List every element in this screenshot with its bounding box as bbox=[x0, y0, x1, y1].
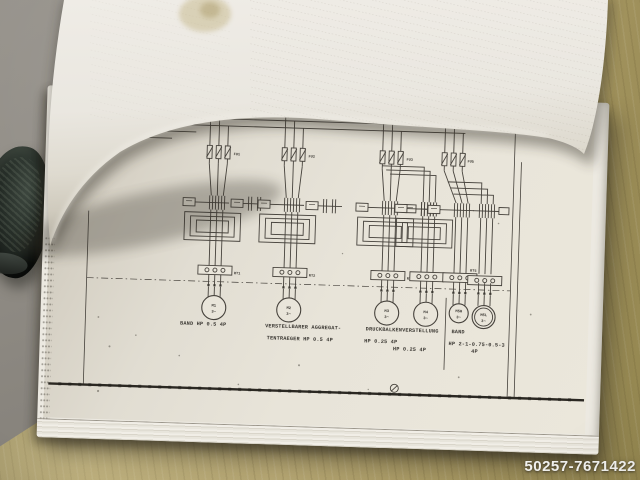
photo-of-wiring-manual: FU1 RT1 M1 3~ FU2 RT2 M2 3~ bbox=[0, 0, 640, 480]
caption-band2-2: HP 2-1-0.75-0.5-3 bbox=[448, 341, 504, 349]
schematic-diagram: FU1 RT1 M1 3~ FU2 RT2 M2 3~ bbox=[37, 89, 607, 428]
motor-name: M5H bbox=[455, 310, 463, 314]
relay-label: RT5 bbox=[470, 270, 477, 274]
registration-mark bbox=[390, 384, 398, 392]
relay-label: RT1 bbox=[234, 272, 241, 276]
page-frame-lines bbox=[48, 119, 592, 401]
caption-druck-3: HP 0.25 4P bbox=[393, 346, 426, 353]
motor-phase: 3~ bbox=[211, 311, 216, 315]
fuse-label: FU1 bbox=[234, 153, 241, 157]
branch-m1: FU1 RT1 M1 3~ bbox=[179, 111, 269, 322]
caption-band2-3: 4P bbox=[471, 349, 478, 355]
fuse-label: FU3 bbox=[406, 159, 413, 163]
caption-druck-1: DRUCKBALKENVERSTELLUNG bbox=[366, 326, 439, 334]
caption-band1: BAND HP 0.5 4P bbox=[180, 321, 227, 328]
captions: BAND HP 0.5 4P VERSTELLBARER AGGREGAT- T… bbox=[179, 321, 505, 356]
manual-page-stack: FU1 RT1 M1 3~ FU2 RT2 M2 3~ bbox=[37, 85, 610, 454]
branch-m2: FU2 RT2 M2 3~ bbox=[254, 113, 344, 324]
caption-druck-2: HP 0.25 4P bbox=[364, 338, 397, 345]
motor-name: M5L bbox=[480, 314, 488, 318]
caption-verstell-2: TENTRAEGER HP 0.5 4P bbox=[267, 335, 333, 343]
relay-label: RT2 bbox=[309, 275, 316, 279]
supply-bus bbox=[134, 108, 474, 149]
fuse-label: FU5 bbox=[467, 160, 474, 164]
fuse-label: FU2 bbox=[308, 155, 315, 159]
shoe-mesh bbox=[0, 154, 47, 254]
caption-verstell-1: VERSTELLBARER AGGREGAT- bbox=[265, 323, 341, 331]
watermark: 50257-7671422 bbox=[524, 458, 636, 475]
motor-name: M1 bbox=[211, 305, 216, 309]
shoe-sole bbox=[0, 250, 29, 277]
caption-band2-1: BAND bbox=[451, 329, 464, 335]
branch-m3: FU3 RT3 M3 3~ bbox=[352, 116, 442, 327]
